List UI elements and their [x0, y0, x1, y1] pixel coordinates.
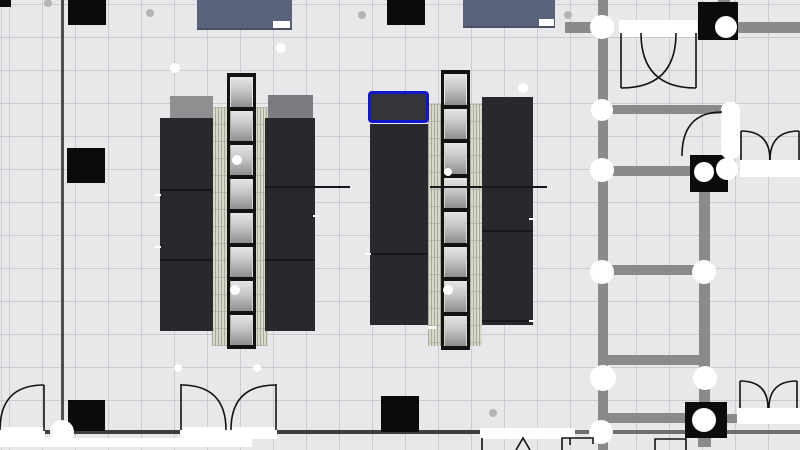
column-circle[interactable]	[715, 16, 737, 38]
chair-seat[interactable]	[445, 109, 466, 140]
marker-dot-gray	[146, 9, 154, 17]
marker-dot-gray	[44, 0, 52, 7]
desk-edge-tick	[365, 253, 371, 255]
room-block-notch	[539, 19, 554, 26]
chair-seat[interactable]	[231, 111, 252, 141]
door-opening[interactable]	[619, 20, 697, 37]
chair-seat[interactable]	[445, 212, 466, 243]
chair-seat[interactable]	[445, 316, 466, 347]
structural-column[interactable]	[381, 396, 419, 432]
desk-bank[interactable]	[370, 124, 428, 325]
marker-dot-gray	[564, 11, 572, 19]
chair-seat[interactable]	[231, 247, 252, 277]
storage-cabinet[interactable]	[268, 95, 313, 120]
column-circle[interactable]	[693, 366, 717, 390]
structural-column[interactable]	[68, 400, 105, 431]
door-opening[interactable]	[740, 160, 800, 177]
selected-desk[interactable]	[368, 91, 429, 123]
marker-dot-white	[230, 285, 240, 295]
column-circle[interactable]	[692, 260, 716, 284]
column-circle[interactable]	[591, 99, 613, 121]
chair-seat[interactable]	[445, 247, 466, 278]
chair-row[interactable]	[441, 70, 470, 350]
marker-dot-white	[253, 364, 261, 372]
desk-edge-tick	[155, 246, 161, 248]
chair-frame-bar	[444, 346, 467, 350]
desk-bank[interactable]	[160, 118, 213, 331]
wall-segment[interactable]	[608, 105, 722, 114]
wall-segment[interactable]	[608, 265, 699, 275]
chair-seat[interactable]	[231, 179, 252, 209]
marker-dot-white	[276, 43, 286, 53]
desk-divider-line	[430, 186, 547, 188]
desk-divider-line	[160, 189, 213, 191]
marker-dot-white	[443, 285, 453, 295]
desk-edge-tick	[155, 194, 161, 196]
door-opening[interactable]	[737, 408, 800, 424]
door-leaf[interactable]	[721, 102, 740, 159]
marker-dot-white	[518, 83, 528, 93]
marker-dot-gray	[489, 409, 497, 417]
desk-edge-tick	[529, 218, 535, 220]
chair-seat[interactable]	[445, 178, 466, 209]
chair-seat[interactable]	[231, 315, 252, 345]
column-circle[interactable]	[716, 158, 738, 180]
floorplan-canvas[interactable]	[0, 0, 800, 450]
wall-segment[interactable]	[608, 413, 685, 423]
marker-dot-white	[232, 155, 242, 165]
desk-divider-line	[482, 320, 533, 322]
desk-edge-tick	[313, 215, 319, 217]
marker-dot-gray	[358, 11, 366, 19]
column-circle[interactable]	[50, 420, 74, 444]
chair-seat[interactable]	[231, 77, 252, 107]
column-circle[interactable]	[694, 162, 714, 182]
desk-divider-line	[265, 186, 350, 188]
room-block-notch	[273, 21, 290, 28]
desk-bank[interactable]	[482, 97, 533, 325]
desk-bank[interactable]	[265, 118, 315, 331]
wall-segment[interactable]	[698, 437, 711, 447]
marker-dot-white	[444, 168, 452, 176]
wall-segment[interactable]	[608, 166, 690, 176]
structural-column[interactable]	[387, 0, 425, 25]
column-circle[interactable]	[590, 15, 614, 39]
marker-dot-white	[174, 364, 182, 372]
floorplan-geometry-layer	[0, 0, 800, 450]
column-circle[interactable]	[590, 260, 614, 284]
column-circle[interactable]	[590, 365, 616, 391]
wall-line[interactable]	[61, 0, 64, 432]
door-opening[interactable]	[0, 438, 252, 447]
structural-column[interactable]	[68, 0, 106, 25]
wall-segment[interactable]	[727, 414, 737, 423]
marker-dot-white	[170, 63, 180, 73]
wall-segment[interactable]	[737, 22, 800, 33]
door-opening[interactable]	[480, 428, 575, 439]
chair-row[interactable]	[227, 73, 256, 349]
column-circle[interactable]	[692, 408, 716, 432]
desk-divider-line	[370, 253, 428, 255]
desk-divider-line	[160, 259, 213, 261]
structural-column[interactable]	[0, 0, 11, 7]
chair-seat[interactable]	[445, 74, 466, 105]
desk-edge-tick	[428, 326, 436, 329]
desk-edge-tick	[529, 320, 535, 322]
wall-segment[interactable]	[608, 355, 699, 365]
chair-seat[interactable]	[231, 213, 252, 243]
chair-frame-bar	[230, 345, 253, 349]
column-circle[interactable]	[590, 158, 614, 182]
desk-divider-line	[482, 230, 533, 232]
desk-divider-line	[265, 259, 315, 261]
structural-column[interactable]	[67, 148, 105, 183]
